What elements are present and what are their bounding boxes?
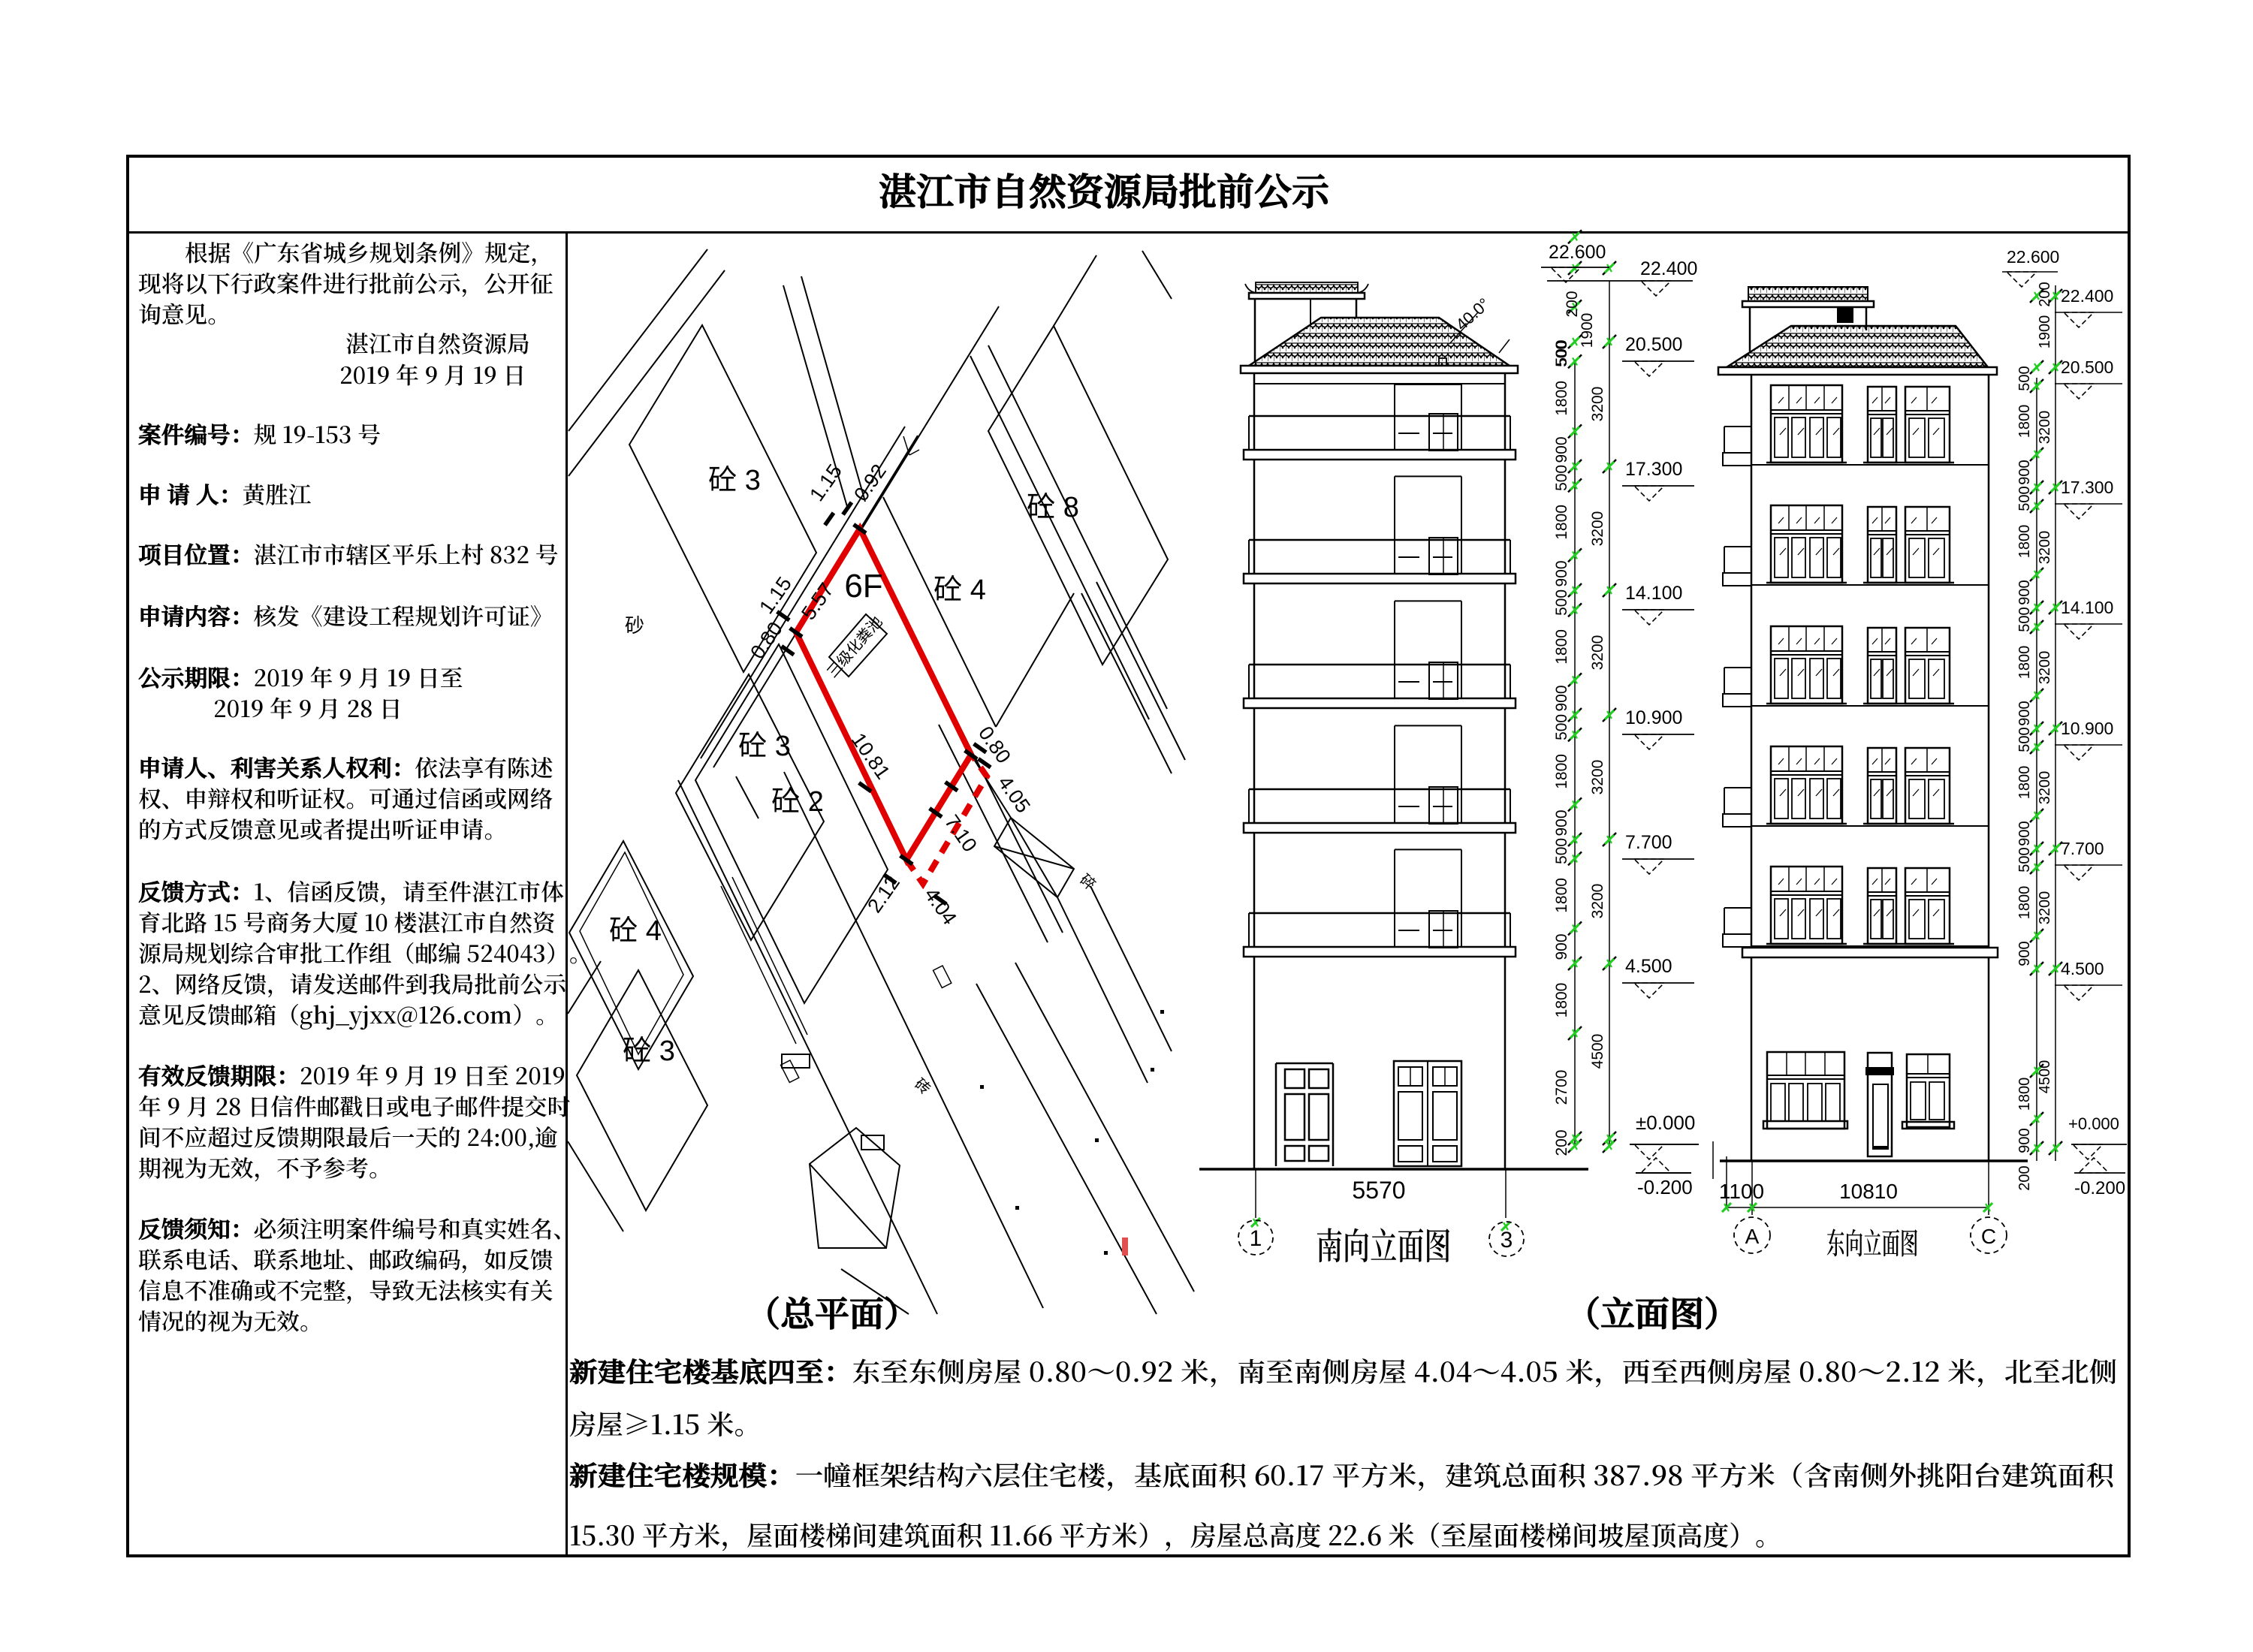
svg-text:C: C [1981,1225,1996,1248]
svg-text:碎: 碎 [1076,871,1099,894]
svg-text:砖: 砖 [911,1075,933,1098]
svg-text:2700: 2700 [1553,1070,1570,1105]
svg-text:500: 500 [1553,339,1570,366]
svg-text:1800: 1800 [2016,1078,2033,1111]
svg-text:900: 900 [2016,1128,2033,1153]
svg-text:砼 4: 砼 4 [933,574,986,606]
svg-text:3200: 3200 [2037,531,2053,565]
svg-text:砼 3: 砼 3 [623,1036,675,1067]
svg-text:3200: 3200 [1589,760,1606,795]
svg-text:4500: 4500 [1589,1034,1606,1069]
svg-text:3: 3 [1500,1228,1513,1253]
svg-text:22.600: 22.600 [1549,242,1606,263]
svg-text:200: 200 [2037,282,2053,306]
svg-text:+0.000: +0.000 [2068,1114,2119,1133]
svg-text:7.700: 7.700 [1625,832,1672,853]
svg-text:3200: 3200 [1589,511,1606,547]
svg-text:20.500: 20.500 [2061,357,2113,377]
svg-text:1800: 1800 [2016,886,2033,920]
svg-text:14.100: 14.100 [1625,583,1682,604]
svg-text:1800: 1800 [1553,381,1570,416]
svg-text:900: 900 [2016,460,2033,484]
svg-text:砼 2: 砼 2 [771,786,824,818]
svg-text:1800: 1800 [1553,505,1570,540]
svg-text:900: 900 [1553,560,1570,586]
svg-text:900: 900 [1553,933,1570,960]
svg-text:200: 200 [1553,1129,1570,1156]
svg-text:500: 500 [2016,486,2033,511]
svg-text:900: 900 [1553,436,1570,463]
svg-text:900: 900 [2016,701,2033,725]
svg-text:1800: 1800 [2016,646,2033,680]
svg-text:500: 500 [1553,589,1570,616]
svg-text:1800: 1800 [1553,754,1570,789]
svg-text:2.12: 2.12 [863,872,904,917]
svg-text:-0.200: -0.200 [1637,1176,1693,1198]
svg-text:3200: 3200 [1589,387,1606,422]
svg-text:4500: 4500 [2037,1060,2053,1094]
svg-text:10.900: 10.900 [1625,707,1682,728]
svg-text:1800: 1800 [1553,629,1570,665]
svg-text:1800: 1800 [1553,878,1570,913]
svg-text:砼 3: 砼 3 [738,731,791,762]
svg-text:1800: 1800 [2016,766,2033,800]
svg-text:500: 500 [2016,607,2033,632]
svg-text:7.700: 7.700 [2061,839,2104,858]
svg-text:500: 500 [2016,727,2033,752]
svg-text:500: 500 [1553,838,1570,864]
svg-text:10.900: 10.900 [2061,719,2113,738]
svg-text:500: 500 [2016,847,2033,872]
svg-text:1900: 1900 [2037,315,2053,349]
svg-text:6F: 6F [844,568,882,604]
svg-text:3200: 3200 [2037,411,2053,445]
svg-text:40.0°: 40.0° [1452,294,1493,334]
svg-text:1800: 1800 [1553,983,1570,1018]
svg-text:±0.000: ±0.000 [1636,1111,1695,1134]
svg-text:22.600: 22.600 [2007,247,2059,267]
svg-text:砼 4: 砼 4 [609,915,662,947]
svg-text:1: 1 [1250,1226,1262,1251]
svg-text:3200: 3200 [1589,635,1606,671]
svg-text:砼 3: 砼 3 [708,465,761,496]
svg-text:17.300: 17.300 [1625,459,1682,480]
svg-text:200: 200 [2016,1165,2033,1190]
svg-text:3200: 3200 [1589,884,1606,919]
svg-text:900: 900 [2016,821,2033,846]
svg-text:A: A [1745,1225,1760,1248]
svg-text:500: 500 [1553,465,1570,491]
svg-text:900: 900 [2016,580,2033,604]
svg-text:1800: 1800 [2016,525,2033,559]
svg-text:1800: 1800 [2016,405,2033,439]
svg-text:20.500: 20.500 [1625,334,1682,355]
svg-text:14.100: 14.100 [2061,598,2113,617]
svg-text:17.300: 17.300 [2061,478,2113,497]
svg-text:4.05: 4.05 [994,772,1035,817]
svg-text:900: 900 [1553,809,1570,836]
svg-text:1100: 1100 [1719,1180,1764,1203]
svg-text:900: 900 [1553,685,1570,711]
svg-text:-0.200: -0.200 [2074,1178,2125,1198]
svg-text:500: 500 [2016,366,2033,390]
svg-text:4.500: 4.500 [2061,959,2104,978]
svg-text:500: 500 [1553,714,1570,740]
svg-text:1900: 1900 [1579,313,1596,348]
svg-text:3200: 3200 [2037,771,2053,805]
svg-text:22.400: 22.400 [2061,286,2113,306]
svg-text:3200: 3200 [2037,651,2053,685]
svg-text:22.400: 22.400 [1640,258,1697,279]
svg-text:砼 8: 砼 8 [1027,492,1079,523]
svg-text:3200: 3200 [2037,891,2053,925]
svg-text:5570: 5570 [1352,1177,1405,1204]
svg-text:4.500: 4.500 [1625,956,1672,977]
svg-text:4.04: 4.04 [920,884,961,929]
svg-text:砂: 砂 [625,614,644,637]
svg-text:900: 900 [2016,941,2033,966]
svg-text:10810: 10810 [1839,1180,1898,1203]
svg-text:0.80: 0.80 [746,618,787,663]
